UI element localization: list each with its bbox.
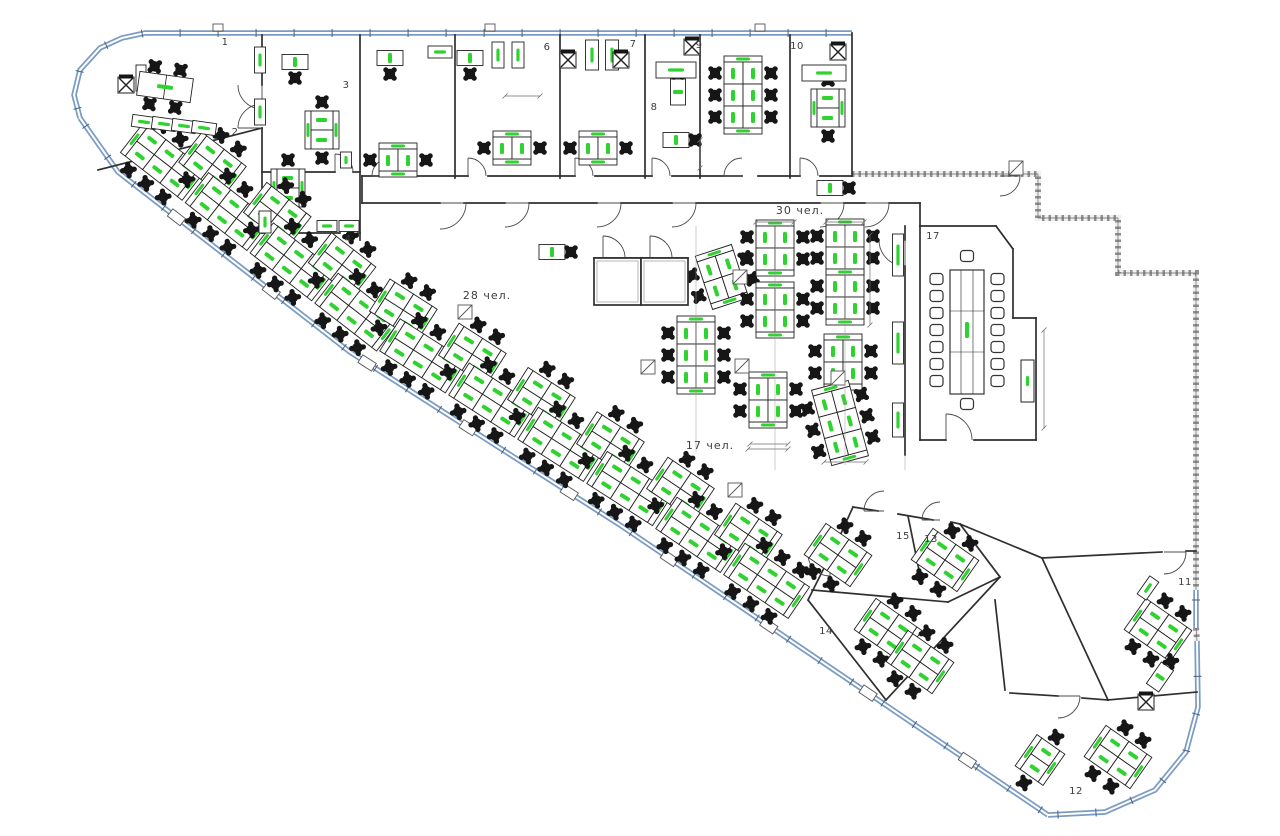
equipment-marker (704, 328, 708, 339)
side-table (802, 65, 846, 81)
equipment-marker (586, 143, 590, 154)
floor-box-symbol (458, 305, 472, 319)
equipment-marker (836, 336, 850, 339)
equipment-marker (776, 384, 780, 395)
equipment-marker (751, 112, 755, 123)
equipment-marker (783, 254, 787, 265)
equipment-marker (833, 231, 837, 242)
equipment-marker (391, 145, 405, 148)
equipment-marker (756, 384, 760, 395)
equipment-marker (704, 350, 708, 361)
equipment-marker (322, 224, 332, 227)
cabinet (317, 221, 337, 232)
equipment-marker (965, 322, 969, 338)
equipment-marker (756, 406, 760, 417)
conference-chair (991, 308, 1004, 319)
equipment-marker (406, 155, 410, 166)
equipment-marker (258, 106, 261, 119)
workstation (539, 244, 579, 260)
equipment-marker (896, 412, 899, 429)
equipment-marker (590, 48, 593, 63)
conference-chair (991, 376, 1004, 387)
equipment-marker (468, 53, 472, 63)
equipment-marker (853, 303, 857, 314)
equipment-marker (841, 101, 844, 115)
conference-chair (930, 308, 943, 319)
equipment-marker (783, 232, 787, 243)
equipment-marker (684, 372, 688, 383)
cabinet (341, 152, 352, 168)
conference-chair (991, 291, 1004, 302)
pod-room (594, 258, 641, 305)
equipment-marker (520, 143, 524, 154)
x-frame-chair (1138, 692, 1154, 711)
equipment-marker (263, 217, 266, 228)
conference-chair (930, 342, 943, 353)
x-frame-chair (684, 37, 700, 56)
x-frame-chair (560, 50, 576, 69)
equipment-marker (591, 133, 605, 136)
conference-chair (961, 251, 974, 262)
equipment-marker (505, 133, 519, 136)
floor-box-symbol (735, 359, 749, 373)
equipment-marker (816, 71, 832, 74)
equipment-marker (783, 294, 787, 305)
equipment-marker (853, 231, 857, 242)
floor-box-symbol (1009, 161, 1023, 175)
expansion-joint (213, 24, 223, 31)
pod-room (641, 258, 688, 305)
equipment-marker (344, 156, 347, 164)
equipment-marker (674, 135, 678, 145)
conference-chair (930, 325, 943, 336)
equipment-marker (307, 123, 310, 137)
equipment-marker (751, 90, 755, 101)
equipment-marker (896, 333, 899, 354)
equipment-marker (673, 90, 683, 94)
equipment-marker (293, 57, 297, 67)
conference-chair (991, 325, 1004, 336)
expansion-joint (485, 24, 495, 31)
equipment-marker (391, 173, 405, 176)
equipment-marker (763, 294, 767, 305)
equipment-marker (822, 116, 833, 120)
cabinet (893, 403, 904, 437)
equipment-marker (704, 372, 708, 383)
cabinet (255, 99, 266, 125)
equipment-marker (500, 143, 504, 154)
cabinet (255, 47, 266, 73)
equipment-marker (516, 49, 519, 62)
cabinet (893, 234, 904, 276)
x-frame-chair (118, 75, 134, 94)
conference-chair (991, 274, 1004, 285)
equipment-marker (833, 281, 837, 292)
equipment-marker (853, 253, 857, 264)
equipment-marker (434, 50, 446, 53)
equipment-marker (896, 245, 899, 266)
equipment-marker (751, 68, 755, 79)
cabinet (492, 42, 504, 68)
equipment-marker (344, 224, 354, 227)
expansion-joint (755, 24, 765, 31)
conference-chair (930, 291, 943, 302)
equipment-marker (851, 368, 855, 379)
equipment-marker (761, 374, 775, 377)
equipment-marker (851, 346, 855, 357)
equipment-marker (316, 138, 327, 142)
floor-box-symbol (641, 360, 655, 374)
equipment-marker (828, 183, 832, 193)
cabinet (259, 211, 271, 233)
equipment-marker (731, 112, 735, 123)
equipment-marker (606, 143, 610, 154)
desk-cluster (707, 56, 779, 134)
equipment-marker (822, 96, 833, 100)
equipment-marker (853, 281, 857, 292)
equipment-marker (813, 101, 816, 115)
equipment-marker (833, 253, 837, 264)
equipment-marker (505, 161, 519, 164)
equipment-marker (736, 130, 750, 133)
equipment-marker (763, 316, 767, 327)
equipment-marker (833, 303, 837, 314)
equipment-marker (776, 406, 780, 417)
equipment-marker (335, 123, 338, 137)
equipment-marker (386, 155, 390, 166)
floor-box-symbol (831, 371, 845, 385)
workstation (817, 180, 857, 196)
equipment-marker (388, 53, 392, 63)
equipment-marker (668, 68, 684, 71)
conference-chair (930, 376, 943, 387)
cabinet (339, 221, 359, 232)
cabinet (512, 42, 524, 68)
equipment-marker (258, 54, 261, 67)
x-frame-chair (830, 42, 846, 61)
equipment-marker (831, 346, 835, 357)
equipment-marker (763, 232, 767, 243)
cabinet (893, 322, 904, 364)
workstation (663, 132, 703, 148)
equipment-marker (1026, 376, 1029, 386)
floor-plan-drawing (0, 0, 1280, 836)
cabinet (428, 46, 452, 58)
conference-chair (991, 359, 1004, 370)
equipment-marker (550, 247, 554, 257)
equipment-marker (591, 161, 605, 164)
equipment-marker (684, 350, 688, 361)
equipment-marker (736, 58, 750, 61)
equipment-marker (783, 316, 787, 327)
floor-box-symbol (728, 483, 742, 497)
equipment-marker (731, 90, 735, 101)
x-frame-chair (613, 50, 629, 69)
cabinet (586, 40, 599, 70)
equipment-marker (761, 424, 775, 427)
conference-chair (991, 342, 1004, 353)
equipment-marker (684, 328, 688, 339)
conference-chair (930, 359, 943, 370)
floor-box-symbol (733, 270, 747, 284)
conference-chair (961, 399, 974, 410)
side-table (656, 62, 696, 78)
conference-chair (930, 274, 943, 285)
floor-plan-canvas: 123467891011121314151730 чел.28 чел.17 ч… (0, 0, 1280, 836)
equipment-marker (763, 254, 767, 265)
equipment-marker (496, 49, 499, 62)
equipment-marker (316, 118, 327, 122)
equipment-marker (731, 68, 735, 79)
